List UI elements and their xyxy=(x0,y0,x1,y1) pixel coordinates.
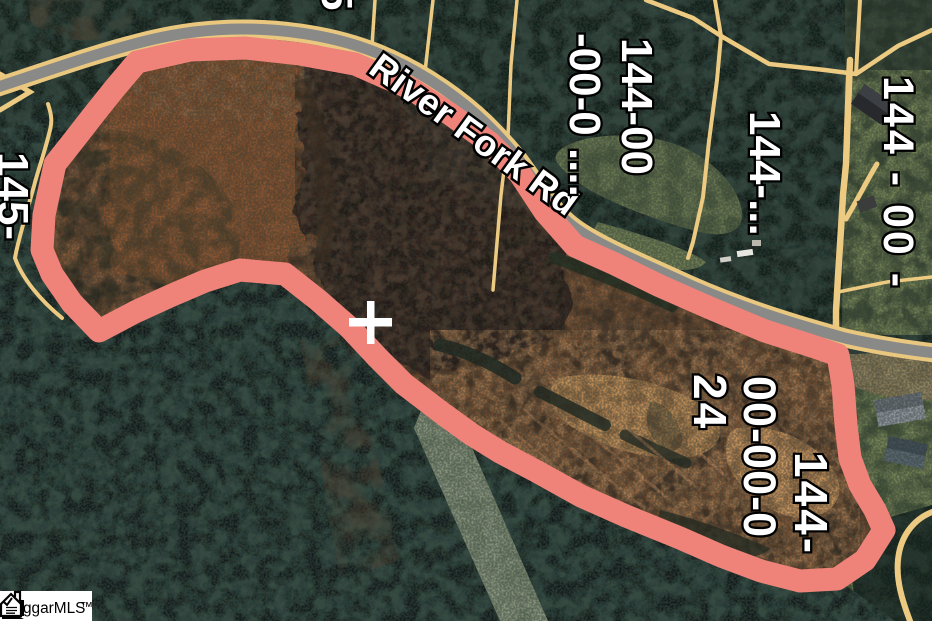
svg-text:144-...: 144-... xyxy=(740,111,789,236)
svg-text:ggarMLS: ggarMLS xyxy=(23,600,85,617)
svg-text:5: 5 xyxy=(312,0,361,10)
svg-text:™: ™ xyxy=(80,599,93,614)
svg-text:24: 24 xyxy=(684,374,736,431)
svg-text:-00-0 ....: -00-0 .... xyxy=(560,33,609,197)
svg-text:144 - 00 -: 144 - 00 - xyxy=(874,76,922,290)
svg-text:144-: 144- xyxy=(785,452,837,556)
svg-text:144-00: 144-00 xyxy=(612,38,661,175)
svg-text:00-00-0: 00-00-0 xyxy=(734,376,785,538)
svg-text:145-: 145- xyxy=(0,152,37,240)
